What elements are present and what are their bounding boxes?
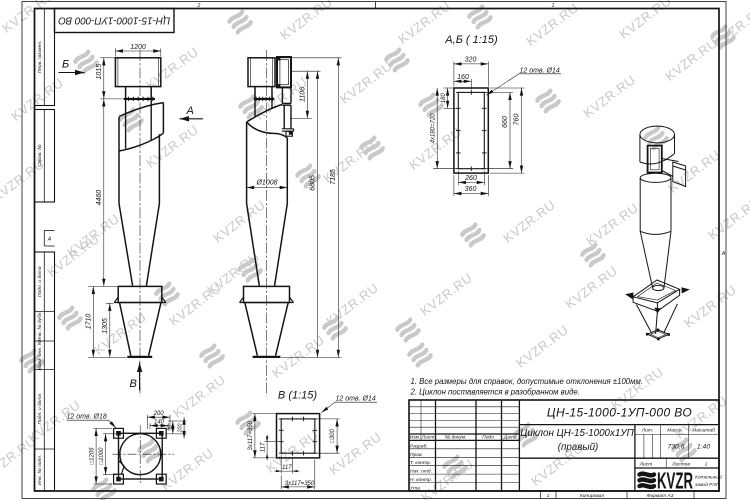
svg-text:7185: 7185 <box>330 169 337 185</box>
svg-text:12 отв. Ø18: 12 отв. Ø18 <box>67 414 107 421</box>
svg-text:12 отв. Ø14: 12 отв. Ø14 <box>336 396 376 403</box>
svg-text:Подп. и дата: Подп. и дата <box>37 266 43 297</box>
svg-text:1106: 1106 <box>299 87 306 102</box>
svg-text:Масштаб: Масштаб <box>692 428 715 434</box>
svg-text:А: А <box>186 105 194 117</box>
svg-text:Дата: Дата <box>503 434 517 440</box>
svg-text:Подп.: Подп. <box>482 434 495 440</box>
svg-text:730,6: 730,6 <box>667 444 684 451</box>
svg-text:□300: □300 <box>330 429 336 443</box>
svg-text:160: 160 <box>457 74 469 81</box>
svg-text:KVZR: KVZR <box>657 468 693 494</box>
svg-text:6805: 6805 <box>309 175 316 191</box>
svg-text:4x180=720: 4x180=720 <box>430 113 436 144</box>
svg-text:180: 180 <box>441 93 447 104</box>
svg-text:Формат А3: Формат А3 <box>647 493 674 499</box>
svg-text:1:40: 1:40 <box>697 444 710 451</box>
svg-text:1710: 1710 <box>85 314 92 330</box>
svg-text:200: 200 <box>153 411 165 417</box>
svg-text:Копировал: Копировал <box>580 493 605 499</box>
svg-text:Лист: Лист <box>639 462 653 468</box>
svg-text:Разраб.: Разраб. <box>410 443 428 449</box>
svg-text:Нач. отд.: Нач. отд. <box>410 469 432 475</box>
svg-text:Н. контр.: Н. контр. <box>410 477 432 483</box>
svg-text:2. Циклон поставляется в разоб: 2. Циклон поставляется в разобранном вид… <box>410 388 580 397</box>
svg-text:117: 117 <box>282 465 292 471</box>
svg-text:(правый): (правый) <box>558 442 599 453</box>
svg-text:1305: 1305 <box>102 318 109 334</box>
svg-text:№ докум.: № докум. <box>445 434 467 440</box>
svg-text:Масса: Масса <box>667 428 682 434</box>
svg-text:Циклон ЦН-15-1000х1УП: Циклон ЦН-15-1000х1УП <box>520 428 634 439</box>
svg-text:В (1:15): В (1:15) <box>278 390 317 402</box>
svg-text:Взам. инв. №: Взам. инв. № <box>37 340 43 370</box>
svg-text:760: 760 <box>514 114 521 126</box>
svg-text:4460: 4460 <box>96 190 103 206</box>
svg-text:Лит.: Лит. <box>641 428 653 434</box>
svg-text:завод РЭП: завод РЭП <box>694 482 720 488</box>
svg-text:660: 660 <box>502 116 509 128</box>
svg-text:Котельный: Котельный <box>695 474 722 481</box>
svg-text:3x117=350: 3x117=350 <box>248 420 254 450</box>
svg-text:1: 1 <box>705 462 708 468</box>
svg-text:Б: Б <box>62 59 69 71</box>
svg-text:Инв. № дубл.: Инв. № дубл. <box>37 311 43 341</box>
svg-text:140: 140 <box>154 419 165 425</box>
svg-text:А: А <box>721 251 726 257</box>
svg-text:117: 117 <box>261 442 267 452</box>
svg-text:□1206: □1206 <box>89 447 95 465</box>
svg-text:Т. контр.: Т. контр. <box>410 460 431 466</box>
svg-text:А,Б ( 1:15): А,Б ( 1:15) <box>444 34 498 46</box>
svg-text:1: 1 <box>547 493 550 499</box>
svg-text:Лист: Лист <box>421 434 435 440</box>
svg-text:Ø1008: Ø1008 <box>255 180 277 187</box>
svg-text:ЦН-15-1000-1УП-000 ВО: ЦН-15-1000-1УП-000 ВО <box>58 15 170 27</box>
svg-text:60: 60 <box>167 425 173 431</box>
svg-text:ЦН-15-1000-1УП-000 ВО: ЦН-15-1000-1УП-000 ВО <box>547 406 692 420</box>
svg-text:Перв. примен.: Перв. примен. <box>37 41 43 74</box>
svg-text:Подп. и дата: Подп. и дата <box>37 394 43 425</box>
svg-text:1015: 1015 <box>96 64 103 80</box>
svg-text:Инв. № подл.: Инв. № подл. <box>37 455 43 485</box>
svg-text:12 отв. Ø14: 12 отв. Ø14 <box>520 67 560 74</box>
svg-text:В: В <box>130 378 137 390</box>
svg-text:А: А <box>47 237 52 243</box>
svg-text:1. Все размеры для справок, до: 1. Все размеры для справок, допустимые о… <box>411 377 644 386</box>
svg-text:Справ. №: Справ. № <box>37 145 43 167</box>
svg-text:Пров.: Пров. <box>410 452 423 458</box>
svg-text:320: 320 <box>465 57 477 64</box>
svg-text:200: 200 <box>178 424 184 434</box>
svg-text:260: 260 <box>464 175 477 182</box>
svg-text:3x117=350: 3x117=350 <box>285 481 315 487</box>
svg-text:Изм.: Изм. <box>410 434 420 440</box>
svg-text:360: 360 <box>465 186 477 193</box>
svg-text:1200: 1200 <box>130 44 146 51</box>
svg-text:Утв.: Утв. <box>410 486 421 492</box>
svg-text:□1000: □1000 <box>99 447 105 465</box>
